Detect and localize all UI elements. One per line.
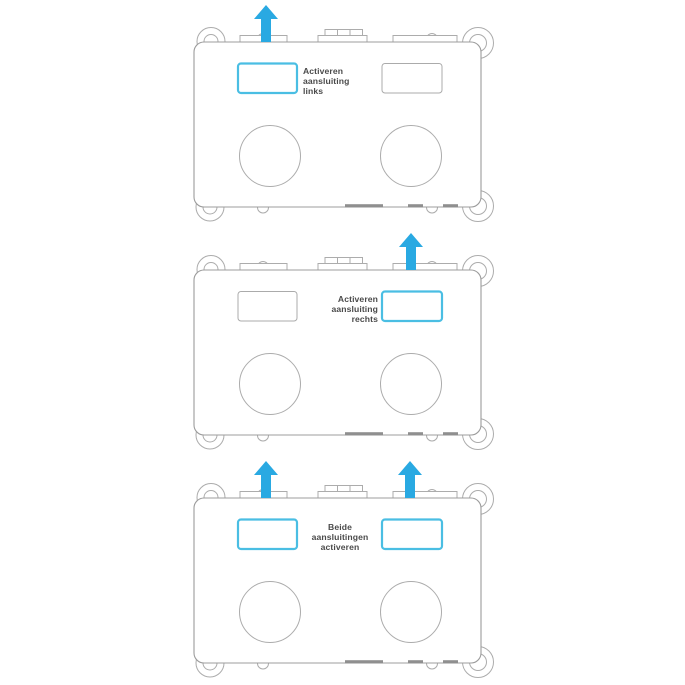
panel-label-line: aansluiting	[303, 76, 349, 86]
left-slot	[238, 520, 297, 550]
panel-label-line: activeren	[321, 542, 360, 552]
device-outline	[194, 28, 494, 222]
panel-label-line: Beide	[328, 522, 352, 532]
panel-label-line: aansluiting	[332, 304, 378, 314]
right-slot	[382, 520, 442, 550]
panel-label-line: Activeren	[303, 66, 343, 76]
device-outline	[194, 256, 494, 450]
device-outline	[194, 484, 494, 678]
panel-label-line: rechts	[352, 314, 379, 324]
panel-activate-left: Activeren aansluiting links	[0, 0, 685, 229]
panel-label-line: links	[303, 86, 323, 96]
left-slot	[238, 292, 297, 322]
panel-label-line: Activeren	[338, 294, 378, 304]
right-slot	[382, 292, 442, 322]
left-slot	[238, 64, 297, 94]
panel-activate-right: Activeren aansluiting rechts	[0, 228, 685, 457]
panel-label-line: aansluitingen	[312, 532, 369, 542]
panel-activate-both: Beide aansluitingen activeren	[0, 456, 685, 685]
right-slot	[382, 64, 442, 94]
